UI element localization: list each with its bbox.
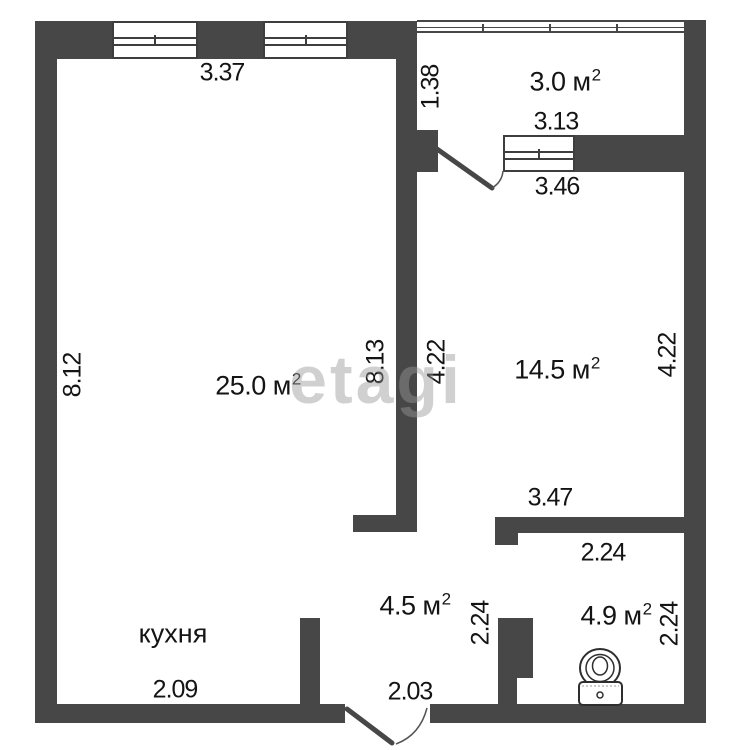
entrance-door-icon [347,708,427,744]
floor-plan: 3.37 1.38 3.13 3.46 8.12 8.13 4.22 4.22 … [0,0,747,750]
toilet-icon [579,649,622,705]
balcony-door-icon [437,149,503,188]
doors-and-fixtures-layer [0,0,747,750]
